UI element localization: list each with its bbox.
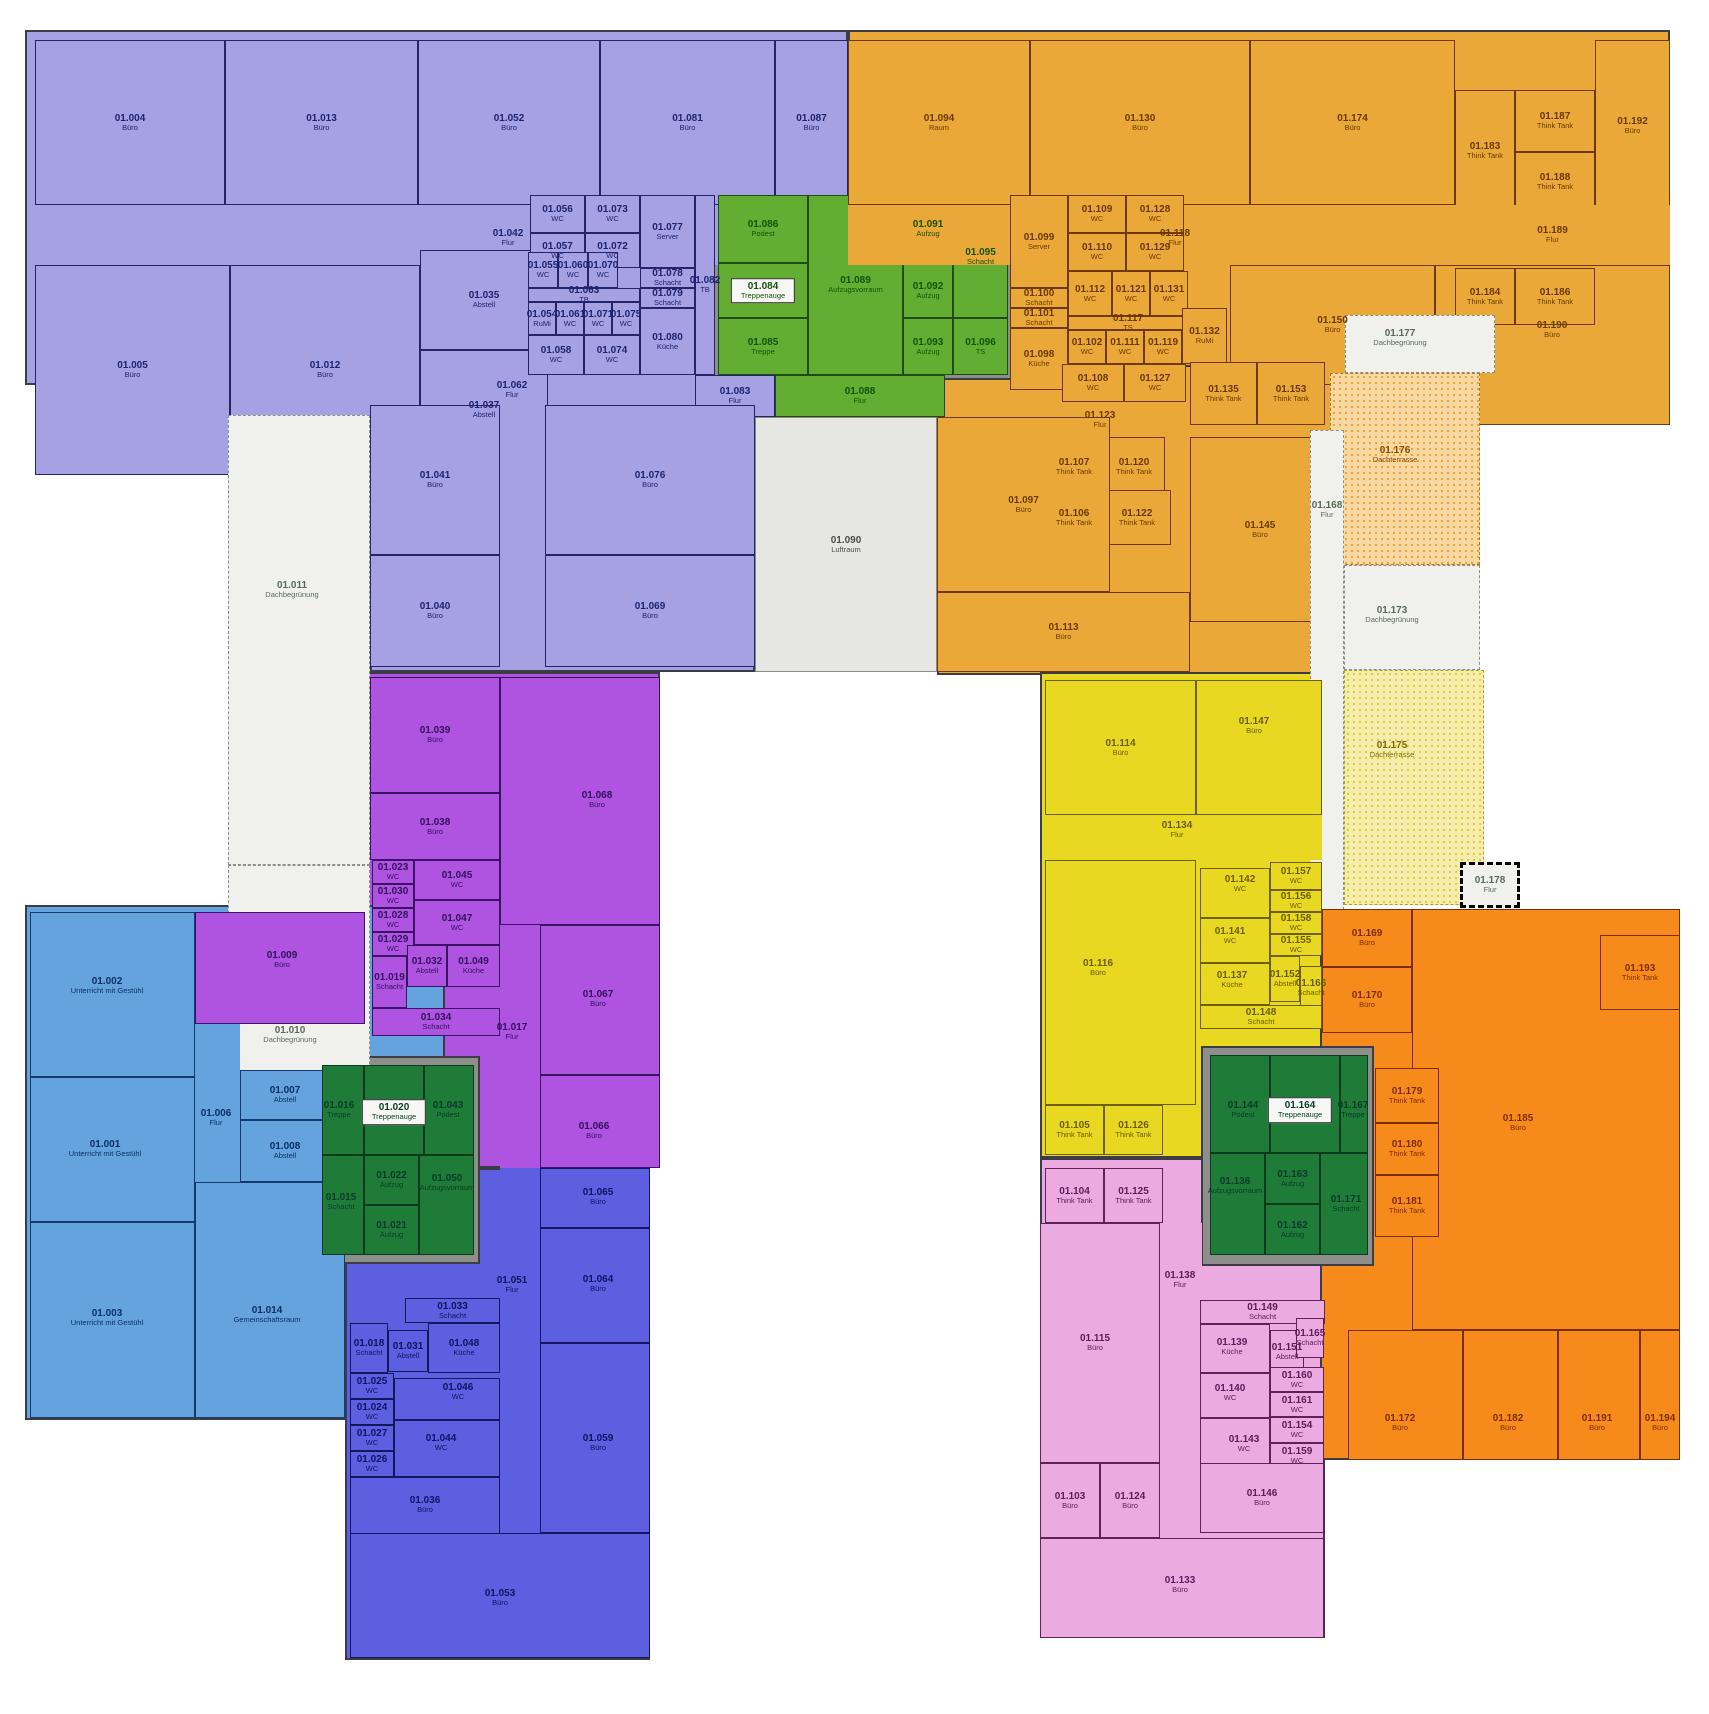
room-01.070 — [588, 252, 618, 288]
room-01.115 — [1040, 1223, 1160, 1463]
room-01.080 — [640, 308, 695, 375]
room-01.039 — [370, 677, 500, 793]
room-01.135 — [1190, 362, 1257, 425]
room-01.156 — [1270, 890, 1322, 912]
room-01.062 — [500, 375, 545, 670]
room-01.060 — [558, 252, 588, 288]
room-01.061 — [556, 302, 584, 335]
room-01.105 — [1045, 1105, 1104, 1155]
room-01.124 — [1100, 1463, 1160, 1538]
room-01.181 — [1375, 1175, 1439, 1237]
room-01.086 — [718, 195, 808, 263]
room-01.031 — [388, 1330, 428, 1372]
room-01.030 — [372, 884, 414, 908]
room-01.186 — [1515, 268, 1595, 325]
room-01.051 — [500, 1168, 540, 1463]
room-01.006 — [195, 1024, 240, 1179]
room-01.180 — [1375, 1123, 1439, 1175]
room-01.065 — [540, 1168, 650, 1228]
room-01.171 — [1320, 1153, 1368, 1255]
room-01.041 — [370, 405, 500, 555]
room-01.154 — [1270, 1417, 1324, 1443]
room-01.018 — [350, 1323, 388, 1373]
room-01.071 — [584, 302, 612, 335]
room-01.085 — [718, 318, 808, 375]
room-01.132 — [1182, 308, 1227, 364]
room-01.103 — [1040, 1463, 1100, 1538]
room-01.119 — [1144, 330, 1182, 364]
room-01.082 — [695, 195, 715, 375]
room-01.005 — [35, 265, 230, 475]
room-01.099 — [1010, 195, 1068, 288]
room-01.116 — [1045, 860, 1196, 1105]
room-01.008 — [240, 1120, 330, 1182]
room-01.046 — [394, 1378, 500, 1420]
room-01.178 — [1460, 862, 1520, 908]
room-01.153 — [1257, 362, 1325, 425]
room-01.024 — [350, 1399, 394, 1425]
room-01.133 — [1040, 1538, 1324, 1638]
room-01.044 — [394, 1420, 500, 1477]
room-01.157 — [1270, 862, 1322, 890]
room-01.166 — [1300, 966, 1322, 1010]
room-01.120 — [1103, 437, 1165, 497]
room-01.016 — [322, 1065, 364, 1155]
room-01.144 — [1210, 1055, 1270, 1153]
room-01.059 — [540, 1343, 650, 1533]
room-01.079 — [640, 288, 695, 308]
room-01.130 — [1030, 40, 1250, 205]
room-01.174 — [1250, 40, 1455, 205]
room-01.092 — [903, 263, 953, 318]
room-01.038 — [370, 793, 500, 860]
room-01.125 — [1104, 1168, 1163, 1223]
room-01.155 — [1270, 934, 1322, 956]
room-01.117 — [1068, 316, 1188, 330]
room-01.004 — [35, 40, 225, 205]
room-01.076 — [545, 405, 755, 555]
room-01.109 — [1068, 195, 1126, 233]
room-01.128 — [1126, 195, 1184, 233]
room-01.127 — [1124, 364, 1186, 402]
room-01.113 — [937, 592, 1190, 672]
room-01.139 — [1200, 1324, 1270, 1373]
room-01.192 — [1595, 40, 1670, 212]
room-01.188 — [1515, 152, 1595, 212]
room-01.066 — [540, 1075, 660, 1168]
room-01.056 — [530, 195, 585, 233]
room-01.126 — [1104, 1105, 1163, 1155]
room-01.021 — [364, 1205, 419, 1255]
room-01.177 — [1345, 315, 1495, 373]
room-01.017 — [500, 925, 540, 1168]
room-01.028 — [372, 908, 414, 932]
room-01.173 — [1344, 565, 1480, 670]
room-01.064 — [540, 1228, 650, 1343]
room-01.172 — [1348, 1330, 1463, 1460]
room-01.019 — [372, 956, 407, 1008]
room-01.101 — [1010, 308, 1068, 328]
room-01.053 — [350, 1533, 650, 1658]
room-01.193 — [1600, 935, 1680, 1010]
room-01.146 — [1200, 1463, 1324, 1533]
room-01.167 — [1340, 1055, 1368, 1153]
room-01.169 — [1322, 909, 1412, 967]
room-01.033 — [405, 1298, 500, 1323]
room-01.090 — [755, 417, 937, 672]
room-01.170 — [1322, 967, 1412, 1033]
room-01.100 — [1010, 288, 1068, 308]
room-01.043 — [424, 1065, 474, 1155]
room-01.032 — [407, 945, 447, 987]
room-01.102 — [1068, 330, 1106, 364]
room-01.074 — [584, 335, 640, 375]
room-01.063 — [528, 288, 640, 302]
room-01.143 — [1200, 1418, 1270, 1468]
room-01.191 — [1558, 1330, 1640, 1460]
room-01.002 — [30, 912, 195, 1077]
room-01.040 — [370, 555, 500, 667]
room-01.007 — [240, 1070, 330, 1120]
room-01.194 — [1640, 1330, 1680, 1460]
room-01.104 — [1045, 1168, 1104, 1223]
room-01.068 — [500, 677, 660, 925]
room-01.022 — [364, 1155, 419, 1205]
room-01.052 — [418, 40, 600, 205]
room-01.023 — [372, 860, 414, 884]
room-01.075 — [612, 302, 640, 335]
room-01.134 — [1045, 815, 1322, 860]
room-01.054 — [528, 302, 556, 335]
room-01.045 — [414, 860, 500, 900]
room-01.096 — [953, 318, 1008, 375]
room-01.176 — [1330, 373, 1480, 565]
room-01.148 — [1200, 1005, 1322, 1029]
room-01.058 — [528, 335, 584, 375]
room-01.015 — [322, 1155, 364, 1255]
room-01.049 — [447, 945, 500, 987]
room-01.078 — [640, 268, 695, 288]
room-01.108 — [1062, 364, 1124, 402]
room-01.158 — [1270, 912, 1322, 934]
room-01.145 — [1190, 437, 1330, 622]
room-01.141 — [1200, 918, 1270, 963]
room-01.182 — [1463, 1330, 1558, 1460]
room-01.055 — [528, 252, 558, 288]
room-01.137 — [1200, 963, 1270, 1005]
room-01.189 — [1435, 205, 1670, 265]
room-01.077 — [640, 195, 695, 268]
room-01.129 — [1126, 233, 1184, 271]
room-01.114 — [1045, 680, 1196, 815]
room-01.160 — [1270, 1367, 1324, 1392]
room-01.025 — [350, 1373, 394, 1399]
room-01.073 — [585, 195, 640, 233]
room-01.121 — [1112, 271, 1150, 316]
room-01.110 — [1068, 233, 1126, 271]
room-01.152 — [1270, 956, 1300, 1002]
room-01.187 — [1515, 90, 1595, 152]
room-01.067 — [540, 925, 660, 1075]
room-01.142 — [1200, 868, 1270, 918]
room-01.087 — [775, 40, 848, 205]
room-01.161 — [1270, 1392, 1324, 1417]
room-01.034 — [372, 1008, 500, 1036]
room-01.111 — [1106, 330, 1144, 364]
floor-plan: 01.004Büro01.013Büro01.052Büro01.081Büro… — [0, 0, 1709, 1714]
room-01.047 — [414, 900, 500, 945]
room-01.013 — [225, 40, 418, 205]
room-01.179 — [1375, 1068, 1439, 1123]
room-01.097 — [937, 417, 1110, 592]
room-01.122 — [1103, 490, 1171, 545]
room-01.020 — [364, 1065, 424, 1155]
room-01.136 — [1210, 1153, 1265, 1255]
room-01.001 — [30, 1077, 195, 1222]
room-01.112 — [1068, 271, 1112, 316]
room-01.050 — [419, 1155, 474, 1255]
room-01.164 — [1270, 1055, 1340, 1153]
room-01.027 — [350, 1425, 394, 1451]
room-01.088 — [775, 375, 945, 417]
room-01.140 — [1200, 1373, 1270, 1418]
room-01.138 — [1160, 1223, 1202, 1463]
room-01.098 — [1010, 328, 1068, 390]
room-01.093 — [903, 318, 953, 375]
room-01.069 — [545, 555, 755, 667]
room-01.081 — [600, 40, 775, 205]
room-01.162 — [1265, 1204, 1320, 1255]
room-01.003 — [30, 1222, 195, 1418]
room-01.165 — [1296, 1318, 1324, 1358]
room-01.009 — [195, 912, 365, 1024]
room-01.147 — [1196, 680, 1322, 815]
room-01.183 — [1455, 90, 1515, 212]
room-01.026 — [350, 1451, 394, 1477]
room-01.048 — [428, 1323, 500, 1373]
room-01.011 — [228, 415, 370, 865]
room-01.163 — [1265, 1153, 1320, 1204]
room-01.084 — [718, 263, 808, 318]
room-01.094 — [848, 40, 1030, 205]
